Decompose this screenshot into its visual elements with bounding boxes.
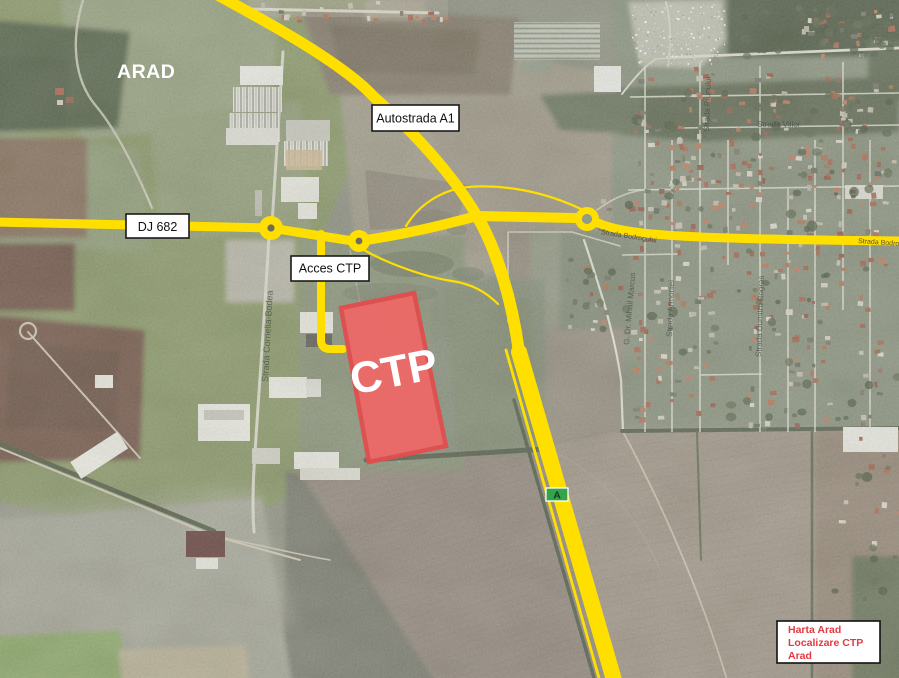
svg-text:DJ 682: DJ 682 xyxy=(138,220,178,234)
svg-text:Harta Arad: Harta Arad xyxy=(788,624,841,636)
svg-text:Arad: Arad xyxy=(788,650,812,662)
svg-text:Localizare CTP: Localizare CTP xyxy=(788,637,863,649)
svg-text:Autostrada A1: Autostrada A1 xyxy=(376,112,455,126)
svg-text:Acces CTP: Acces CTP xyxy=(299,262,362,276)
svg-text:A: A xyxy=(553,490,561,502)
svg-text:ARAD: ARAD xyxy=(117,61,175,83)
svg-text:Strada Viilor: Strada Viilor xyxy=(757,120,801,129)
